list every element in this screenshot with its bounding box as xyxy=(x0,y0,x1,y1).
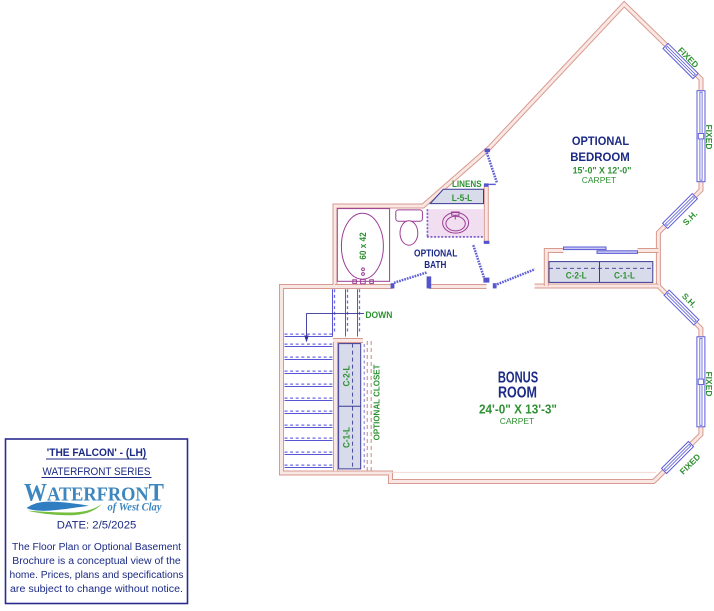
svg-text:'THE FALCON' - (LH): 'THE FALCON' - (LH) xyxy=(47,447,147,459)
svg-text:LINENS: LINENS xyxy=(452,179,482,190)
svg-text:FIXED: FIXED xyxy=(704,371,714,396)
svg-text:60 x 42: 60 x 42 xyxy=(358,232,369,259)
svg-text:C-1-L: C-1-L xyxy=(342,426,352,448)
svg-text:home. Prices, plans and specif: home. Prices, plans and specifications xyxy=(10,570,184,581)
svg-text:WATERFRONT SERIES: WATERFRONT SERIES xyxy=(43,466,151,478)
svg-text:15'-0" X 12'-0": 15'-0" X 12'-0" xyxy=(573,165,632,175)
svg-text:of West Clay: of West Clay xyxy=(108,500,163,514)
svg-text:ROOM: ROOM xyxy=(498,385,537,402)
svg-text:BATH: BATH xyxy=(424,259,446,271)
svg-text:24'-0" X 13'-3": 24'-0" X 13'-3" xyxy=(479,403,557,417)
svg-text:CARPET: CARPET xyxy=(500,416,534,426)
svg-text:DATE: 2/5/2025: DATE: 2/5/2025 xyxy=(57,520,137,532)
svg-text:DOWN: DOWN xyxy=(365,310,392,321)
svg-text:L-5-L: L-5-L xyxy=(452,193,473,204)
svg-text:Brochure is a conceptual view: Brochure is a conceptual view of the xyxy=(12,556,181,567)
svg-text:BEDROOM: BEDROOM xyxy=(570,150,630,164)
svg-text:are subject to change without: are subject to change without notice. xyxy=(10,584,183,595)
svg-text:FIXED: FIXED xyxy=(704,124,714,149)
svg-text:OPTIONAL: OPTIONAL xyxy=(572,134,629,148)
svg-text:C-2-L: C-2-L xyxy=(566,271,587,282)
svg-text:The Floor Plan or Optional Bas: The Floor Plan or Optional Basement xyxy=(12,542,181,553)
svg-text:C-2-L: C-2-L xyxy=(342,365,352,387)
svg-text:CARPET: CARPET xyxy=(582,175,616,185)
svg-text:OPTIONAL: OPTIONAL xyxy=(414,247,458,259)
svg-text:OPTIONAL CLOSET: OPTIONAL CLOSET xyxy=(373,364,382,440)
svg-text:C-1-L: C-1-L xyxy=(614,271,635,282)
